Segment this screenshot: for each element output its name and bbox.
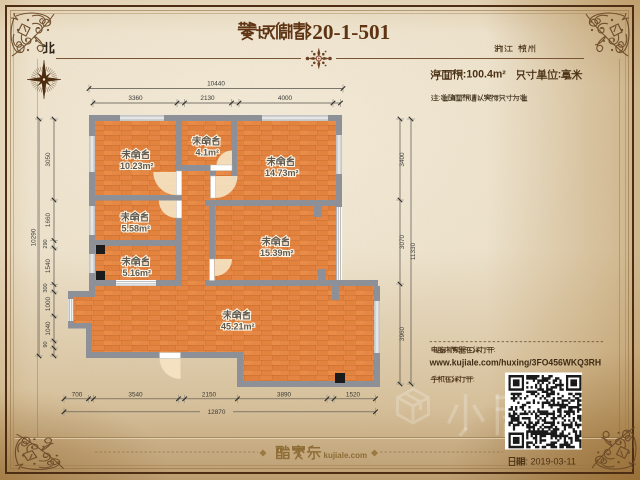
svg-text::: : xyxy=(439,93,441,102)
svg-text:20-1-501: 20-1-501 xyxy=(312,20,390,44)
svg-text:3540: 3540 xyxy=(128,391,143,398)
svg-text:11330: 11330 xyxy=(410,242,417,260)
svg-text:10290: 10290 xyxy=(31,228,38,246)
svg-text:10.23m²: 10.23m² xyxy=(120,161,154,171)
svg-text:5.16m²: 5.16m² xyxy=(123,268,152,278)
svg-text:3360: 3360 xyxy=(128,95,143,102)
svg-text::: : xyxy=(473,377,475,384)
svg-text:290: 290 xyxy=(43,239,49,248)
svg-text::100.4m²: :100.4m² xyxy=(463,69,512,81)
svg-text:700: 700 xyxy=(72,391,83,398)
svg-text:: 2019-03-11: : 2019-03-11 xyxy=(526,456,576,466)
svg-text:4.1m²: 4.1m² xyxy=(196,147,220,157)
svg-text:3400: 3400 xyxy=(399,152,406,167)
svg-text:10440: 10440 xyxy=(207,81,225,88)
svg-text:14.73m²: 14.73m² xyxy=(265,168,299,178)
svg-text:2130: 2130 xyxy=(200,95,215,102)
svg-text::: : xyxy=(558,69,562,81)
svg-text:15.39m²: 15.39m² xyxy=(260,248,294,258)
svg-text::: : xyxy=(494,347,496,354)
svg-text:3050: 3050 xyxy=(45,152,52,167)
svg-text:kujiale.com: kujiale.com xyxy=(324,451,368,460)
svg-text:1000: 1000 xyxy=(45,296,52,311)
svg-text:90: 90 xyxy=(43,341,49,347)
svg-text:45.21m²: 45.21m² xyxy=(221,321,255,331)
svg-text:1540: 1540 xyxy=(45,258,52,273)
svg-text:1040: 1040 xyxy=(45,321,52,336)
svg-text:3960: 3960 xyxy=(399,326,406,341)
svg-text:3890: 3890 xyxy=(277,391,292,398)
svg-text:2150: 2150 xyxy=(202,391,217,398)
svg-text:12870: 12870 xyxy=(208,409,226,416)
svg-text:4000: 4000 xyxy=(278,95,293,102)
svg-text:1660: 1660 xyxy=(45,212,52,227)
svg-text:1520: 1520 xyxy=(346,391,361,398)
svg-text:5.58m²: 5.58m² xyxy=(122,223,151,233)
svg-text:300: 300 xyxy=(43,283,49,292)
svg-text:3070: 3070 xyxy=(399,234,406,249)
svg-text:www.kujiale.com/huxing/3FO456W: www.kujiale.com/huxing/3FO456WKQ3RH xyxy=(429,358,602,368)
